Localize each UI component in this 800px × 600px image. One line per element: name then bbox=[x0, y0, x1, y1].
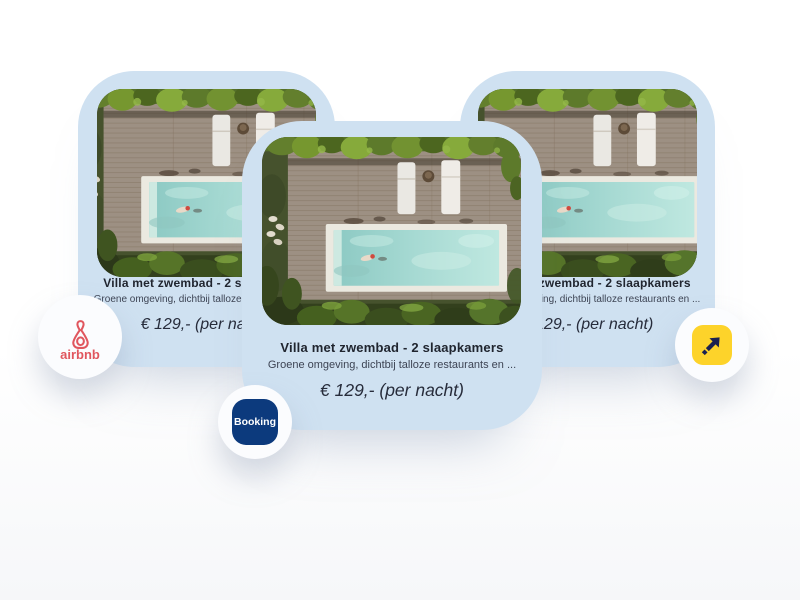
expedia-logo-icon bbox=[692, 325, 732, 365]
booking-logo-icon: Booking bbox=[232, 399, 278, 445]
hero-graphic: Villa met zwembad - 2 slaapkamers Groene… bbox=[0, 0, 800, 600]
villa-pool-photo bbox=[262, 137, 521, 325]
listing-description: Groene omgeving, dichtbij talloze restau… bbox=[242, 359, 542, 371]
airbnb-label: airbnb bbox=[60, 347, 100, 362]
listing-title: Villa met zwembad - 2 slaapkamers bbox=[242, 340, 542, 355]
listing-price: € 129,- (per nacht) bbox=[242, 380, 542, 401]
booking-badge[interactable]: Booking bbox=[218, 385, 292, 459]
expedia-arrow-icon bbox=[697, 330, 727, 360]
expedia-badge[interactable] bbox=[675, 308, 749, 382]
listing-card-middle[interactable]: Villa met zwembad - 2 slaapkamers Groene… bbox=[242, 121, 542, 430]
airbnb-badge[interactable]: airbnb bbox=[38, 295, 122, 379]
booking-label: Booking bbox=[234, 416, 276, 428]
airbnb-logo-icon bbox=[64, 317, 97, 350]
